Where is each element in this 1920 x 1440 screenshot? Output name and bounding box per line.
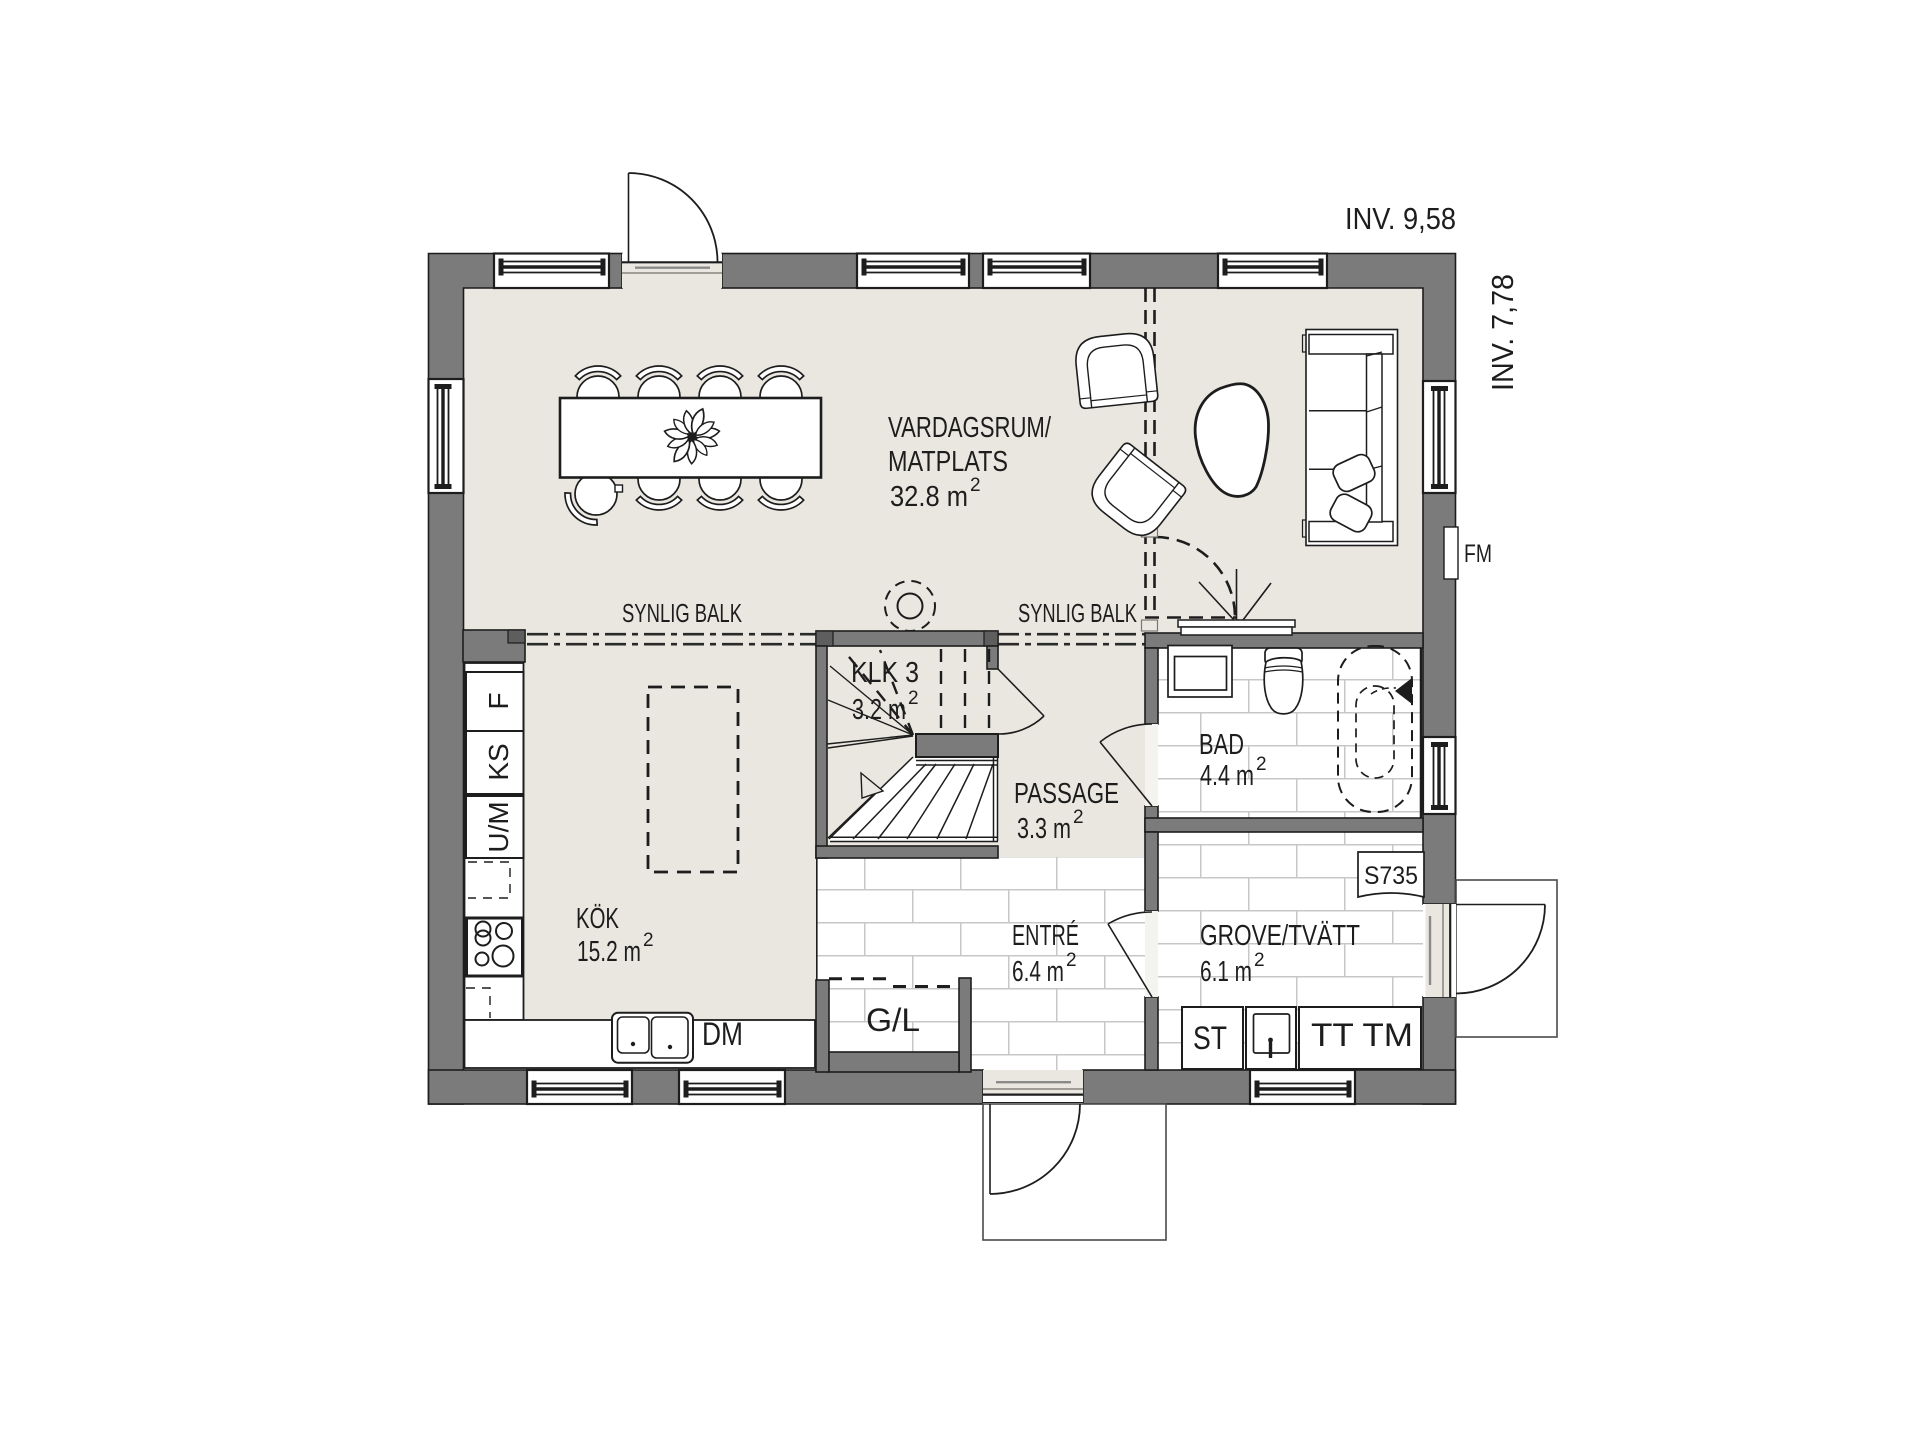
svg-text:2: 2 (908, 688, 919, 709)
svg-text:F: F (483, 692, 514, 709)
svg-text:TT TM: TT TM (1311, 1017, 1413, 1053)
svg-text:2: 2 (1254, 950, 1265, 971)
svg-text:2: 2 (1066, 950, 1077, 971)
svg-text:3.3 m: 3.3 m (1017, 813, 1071, 845)
svg-text:32.8 m: 32.8 m (890, 481, 968, 513)
svg-text:KLK 3: KLK 3 (851, 657, 919, 689)
svg-text:SYNLIG BALK: SYNLIG BALK (1018, 598, 1137, 628)
svg-text:BAD: BAD (1199, 729, 1244, 761)
svg-text:6.4 m: 6.4 m (1012, 956, 1064, 988)
svg-text:6.1 m: 6.1 m (1200, 956, 1252, 988)
svg-text:2: 2 (1073, 807, 1084, 828)
svg-text:2: 2 (970, 475, 981, 496)
svg-text:KÖK: KÖK (576, 903, 619, 935)
svg-text:ENTRÉ: ENTRÉ (1012, 919, 1079, 952)
svg-text:VARDAGSRUM/: VARDAGSRUM/ (888, 412, 1052, 444)
svg-text:3.2 m: 3.2 m (852, 694, 906, 726)
svg-text:GROVE/TVÄTT: GROVE/TVÄTT (1200, 920, 1360, 952)
svg-text:INV. 9,58: INV. 9,58 (1345, 201, 1456, 236)
svg-text:ST: ST (1193, 1020, 1227, 1056)
svg-text:4.4 m: 4.4 m (1200, 760, 1254, 792)
svg-text:S735: S735 (1364, 862, 1418, 890)
svg-text:KS: KS (483, 743, 514, 780)
svg-text:SYNLIG BALK: SYNLIG BALK (622, 598, 742, 628)
svg-text:MATPLATS: MATPLATS (888, 446, 1008, 478)
svg-text:PASSAGE: PASSAGE (1014, 778, 1119, 810)
svg-text:15.2 m: 15.2 m (577, 936, 641, 968)
svg-text:G/L: G/L (866, 1002, 920, 1038)
svg-text:DM: DM (702, 1016, 743, 1052)
svg-text:INV. 7,78: INV. 7,78 (1485, 274, 1520, 391)
svg-text:FM: FM (1464, 540, 1492, 568)
svg-text:U/M: U/M (483, 801, 514, 852)
svg-text:2: 2 (1256, 754, 1267, 775)
svg-text:2: 2 (643, 930, 654, 951)
